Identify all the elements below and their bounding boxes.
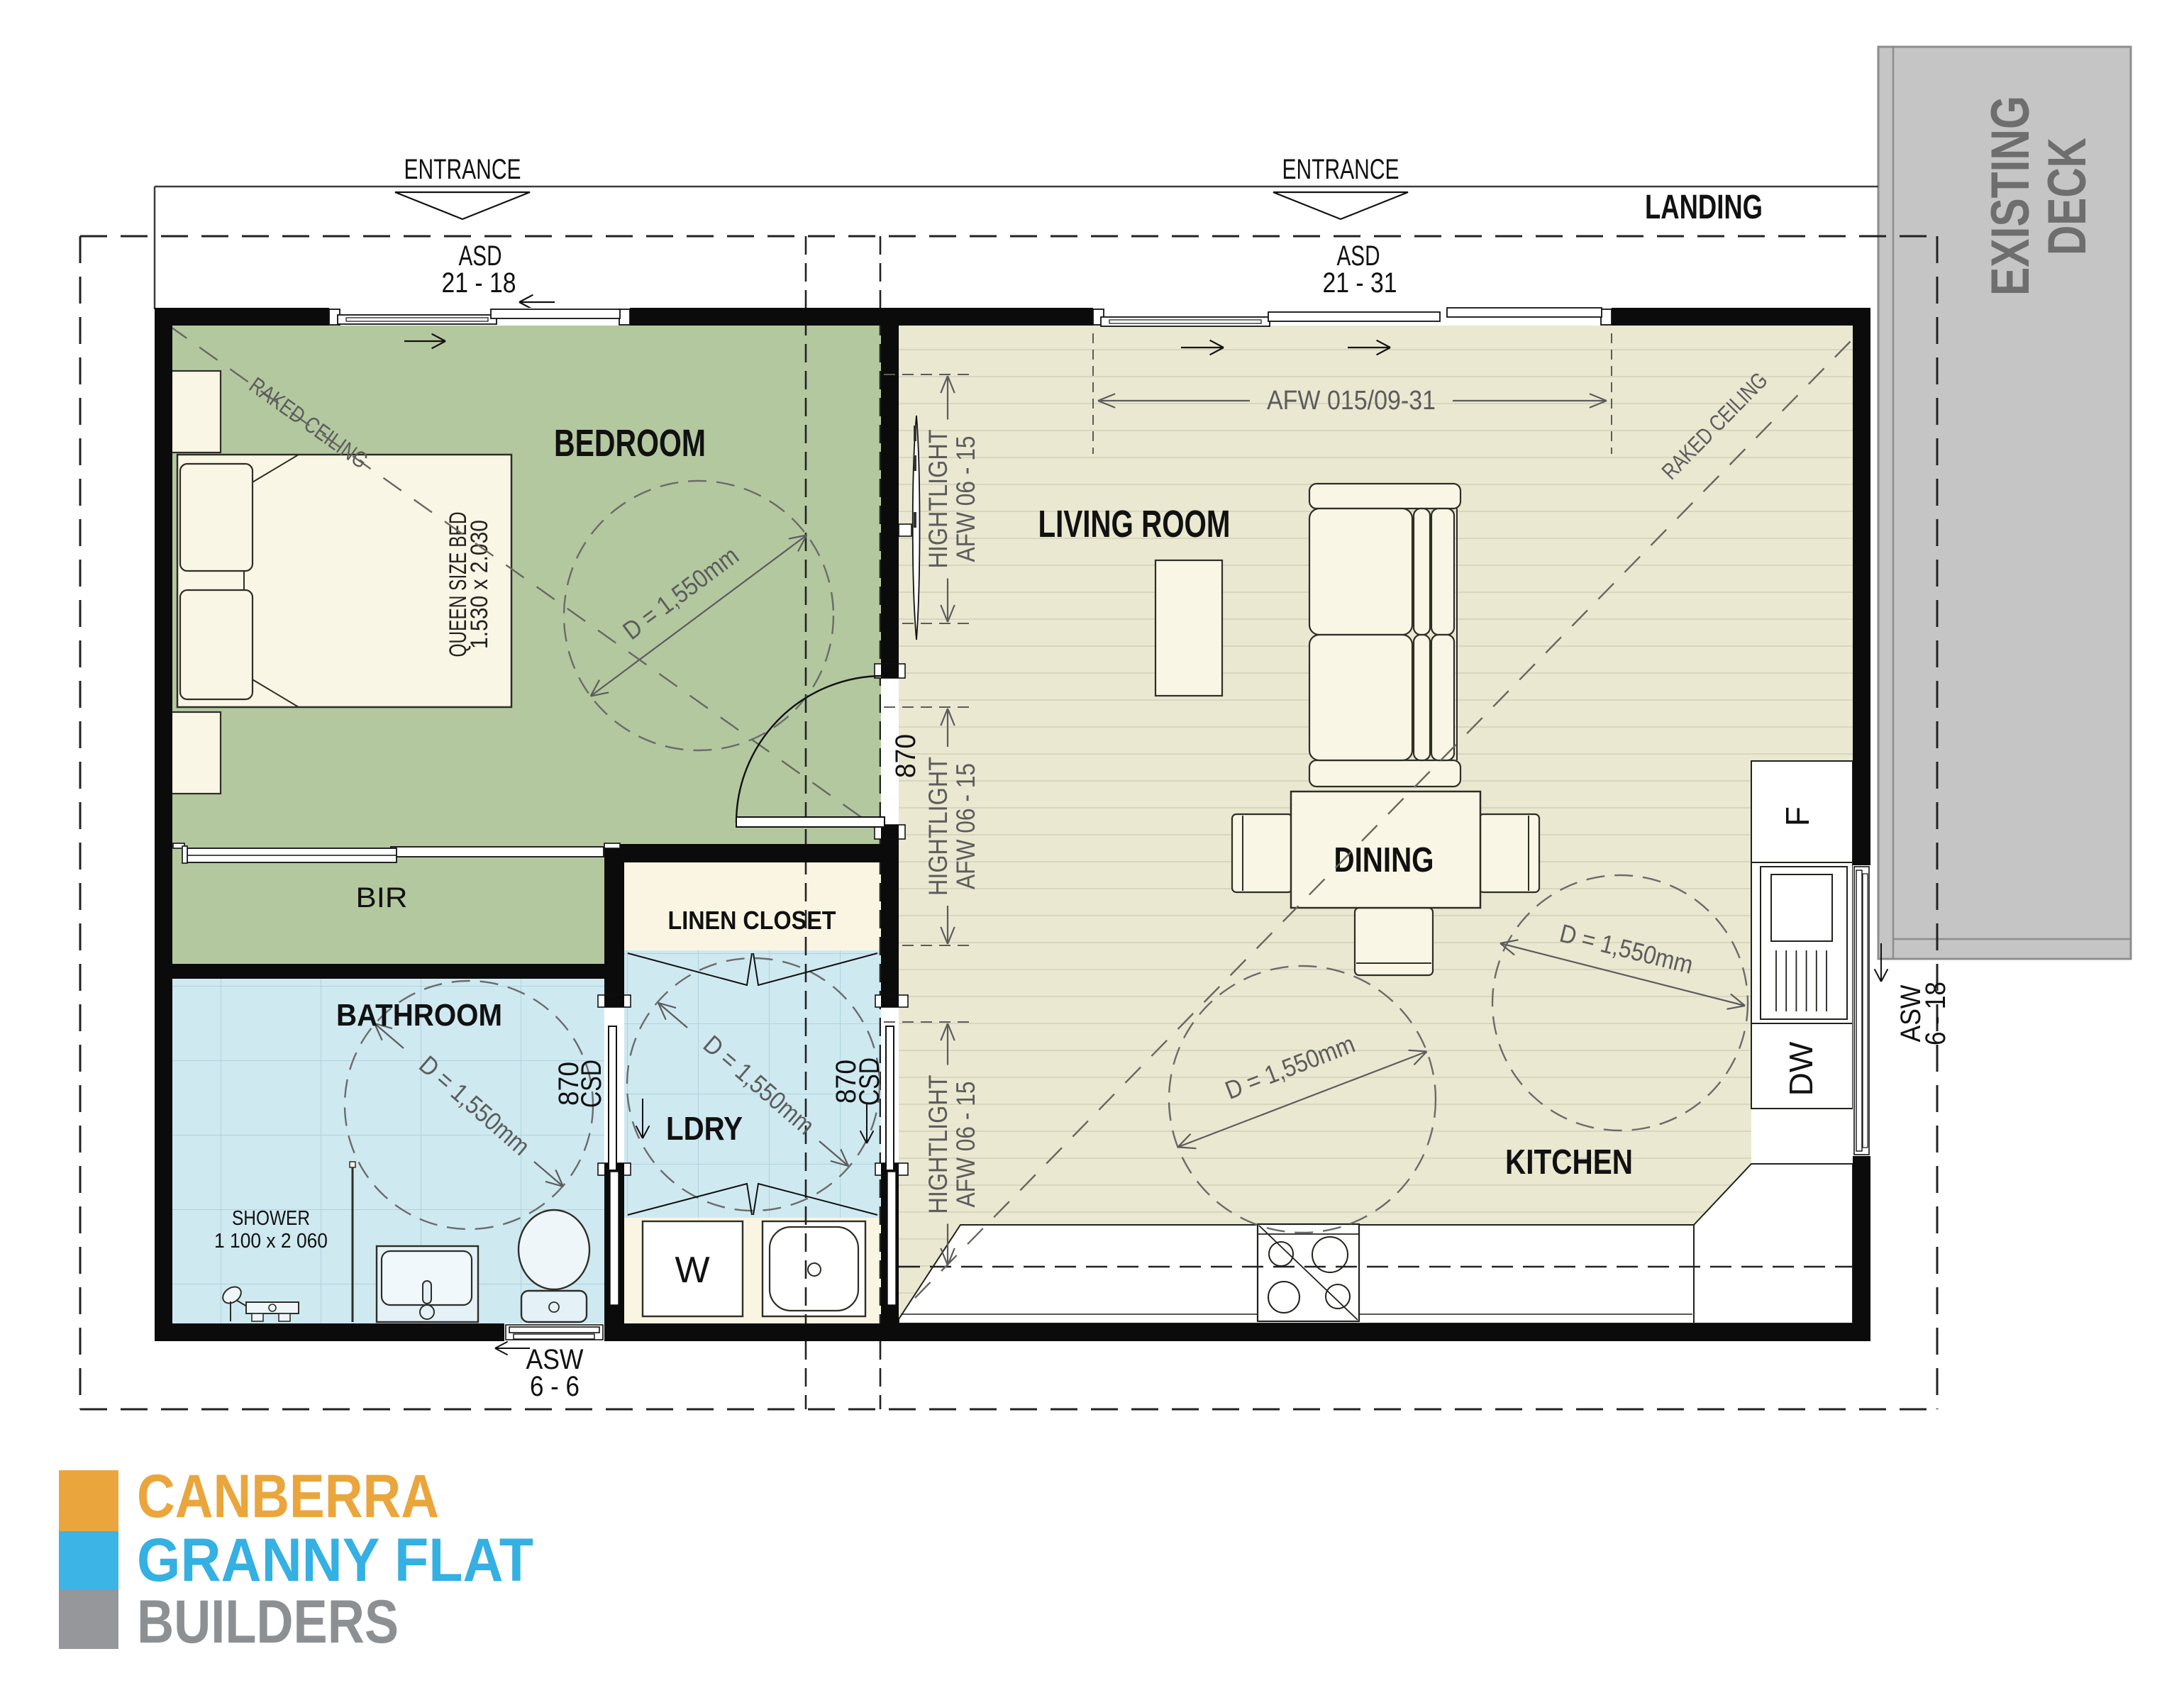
svg-text:DW: DW [1783, 1041, 1819, 1096]
svg-text:F: F [1779, 806, 1816, 826]
svg-text:BATHROOM: BATHROOM [336, 998, 502, 1033]
svg-text:BIR: BIR [356, 882, 408, 913]
svg-text:LIVING ROOM: LIVING ROOM [1038, 503, 1231, 545]
svg-text:AFW 015/09-31: AFW 015/09-31 [1267, 386, 1436, 416]
svg-text:EXISTING: EXISTING [1980, 96, 2041, 296]
svg-text:6 - 18: 6 - 18 [1920, 982, 1951, 1045]
svg-text:LINEN CLOSET: LINEN CLOSET [668, 906, 836, 935]
svg-text:DINING: DINING [1334, 841, 1434, 879]
svg-text:AFW 06 - 15: AFW 06 - 15 [951, 1082, 980, 1208]
svg-text:DECK: DECK [2037, 138, 2097, 255]
svg-text:HIGHTLIGHT: HIGHTLIGHT [924, 1075, 953, 1214]
svg-text:KITCHEN: KITCHEN [1505, 1143, 1633, 1182]
svg-text:21 - 31: 21 - 31 [1323, 267, 1397, 299]
svg-text:ENTRANCE: ENTRANCE [404, 154, 521, 185]
svg-text:AFW 06 - 15: AFW 06 - 15 [951, 436, 980, 562]
svg-text:1.530 x 2.030: 1.530 x 2.030 [466, 520, 493, 649]
svg-text:1 100 x 2 060: 1 100 x 2 060 [214, 1230, 328, 1253]
svg-text:6 - 6: 6 - 6 [530, 1371, 580, 1402]
svg-text:BEDROOM: BEDROOM [554, 422, 706, 465]
svg-text:AFW 06 - 15: AFW 06 - 15 [951, 763, 980, 889]
svg-text:870: 870 [890, 734, 921, 778]
svg-text:LDRY: LDRY [666, 1110, 743, 1147]
svg-text:W: W [675, 1250, 709, 1291]
svg-text:CSD: CSD [576, 1060, 607, 1108]
svg-text:CANBERRA: CANBERRA [137, 1462, 439, 1531]
svg-text:GRANNY FLAT: GRANNY FLAT [137, 1526, 533, 1594]
svg-text:CSD: CSD [854, 1057, 885, 1106]
svg-text:BUILDERS: BUILDERS [137, 1588, 399, 1656]
svg-text:21 - 18: 21 - 18 [442, 267, 516, 299]
svg-text:HIGHTLIGHT: HIGHTLIGHT [924, 757, 953, 896]
svg-text:LANDING: LANDING [1645, 189, 1763, 226]
svg-text:SHOWER: SHOWER [232, 1207, 310, 1230]
svg-text:ENTRANCE: ENTRANCE [1282, 154, 1399, 185]
svg-text:HIGHTLIGHT: HIGHTLIGHT [924, 430, 953, 569]
